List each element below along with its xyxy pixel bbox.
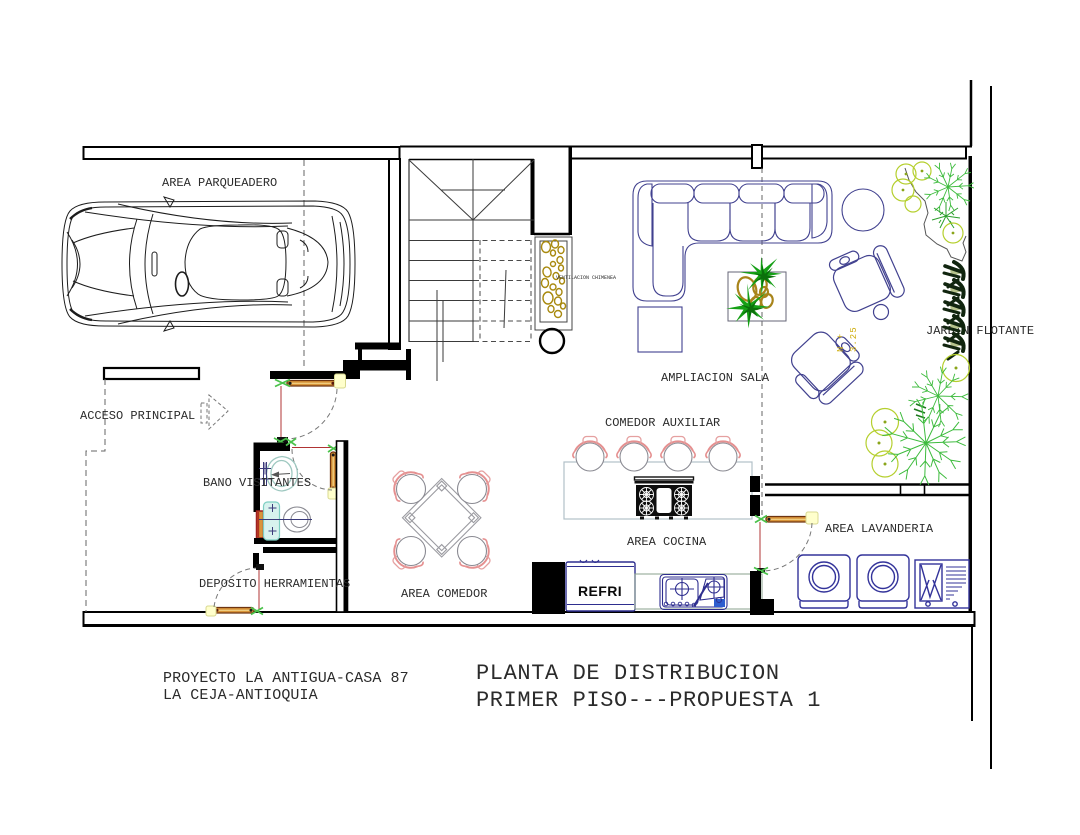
svg-text:AMPLIACION SALA: AMPLIACION SALA [661, 371, 770, 385]
svg-text:AREA COMEDOR: AREA COMEDOR [401, 587, 487, 601]
svg-text:LA CEJA-ANTIOQUIA: LA CEJA-ANTIOQUIA [163, 687, 318, 704]
svg-text:3.25: 3.25 [849, 326, 859, 352]
svg-text:PLANTA DE DISTRIBUCION: PLANTA DE DISTRIBUCION [476, 661, 780, 686]
svg-text:VENTILACION CHIMENEA: VENTILACION CHIMENEA [556, 275, 616, 281]
svg-text:PROYECTO LA ANTIGUA-CASA 87: PROYECTO LA ANTIGUA-CASA 87 [163, 670, 409, 687]
svg-text:JARDIN FLOTANTE: JARDIN FLOTANTE [926, 324, 1034, 338]
svg-text:AREA LAVANDERIA: AREA LAVANDERIA [825, 522, 934, 536]
svg-text:PRIMER PISO---PROPUESTA 1: PRIMER PISO---PROPUESTA 1 [476, 688, 821, 713]
svg-text:DEPOSITO HERRAMIENTAS: DEPOSITO HERRAMIENTAS [199, 577, 350, 591]
svg-text:AREA COCINA: AREA COCINA [627, 535, 707, 549]
svg-text:BANO VISITANTES: BANO VISITANTES [203, 476, 311, 490]
svg-text:REFRI: REFRI [578, 583, 622, 599]
svg-text:AREA PARQUEADERO: AREA PARQUEADERO [162, 176, 277, 190]
svg-text:N +: N + [836, 333, 846, 352]
svg-text:ACCESO PRINCIPAL: ACCESO PRINCIPAL [80, 409, 195, 423]
svg-text:COMEDOR AUXILIAR: COMEDOR AUXILIAR [605, 416, 720, 430]
